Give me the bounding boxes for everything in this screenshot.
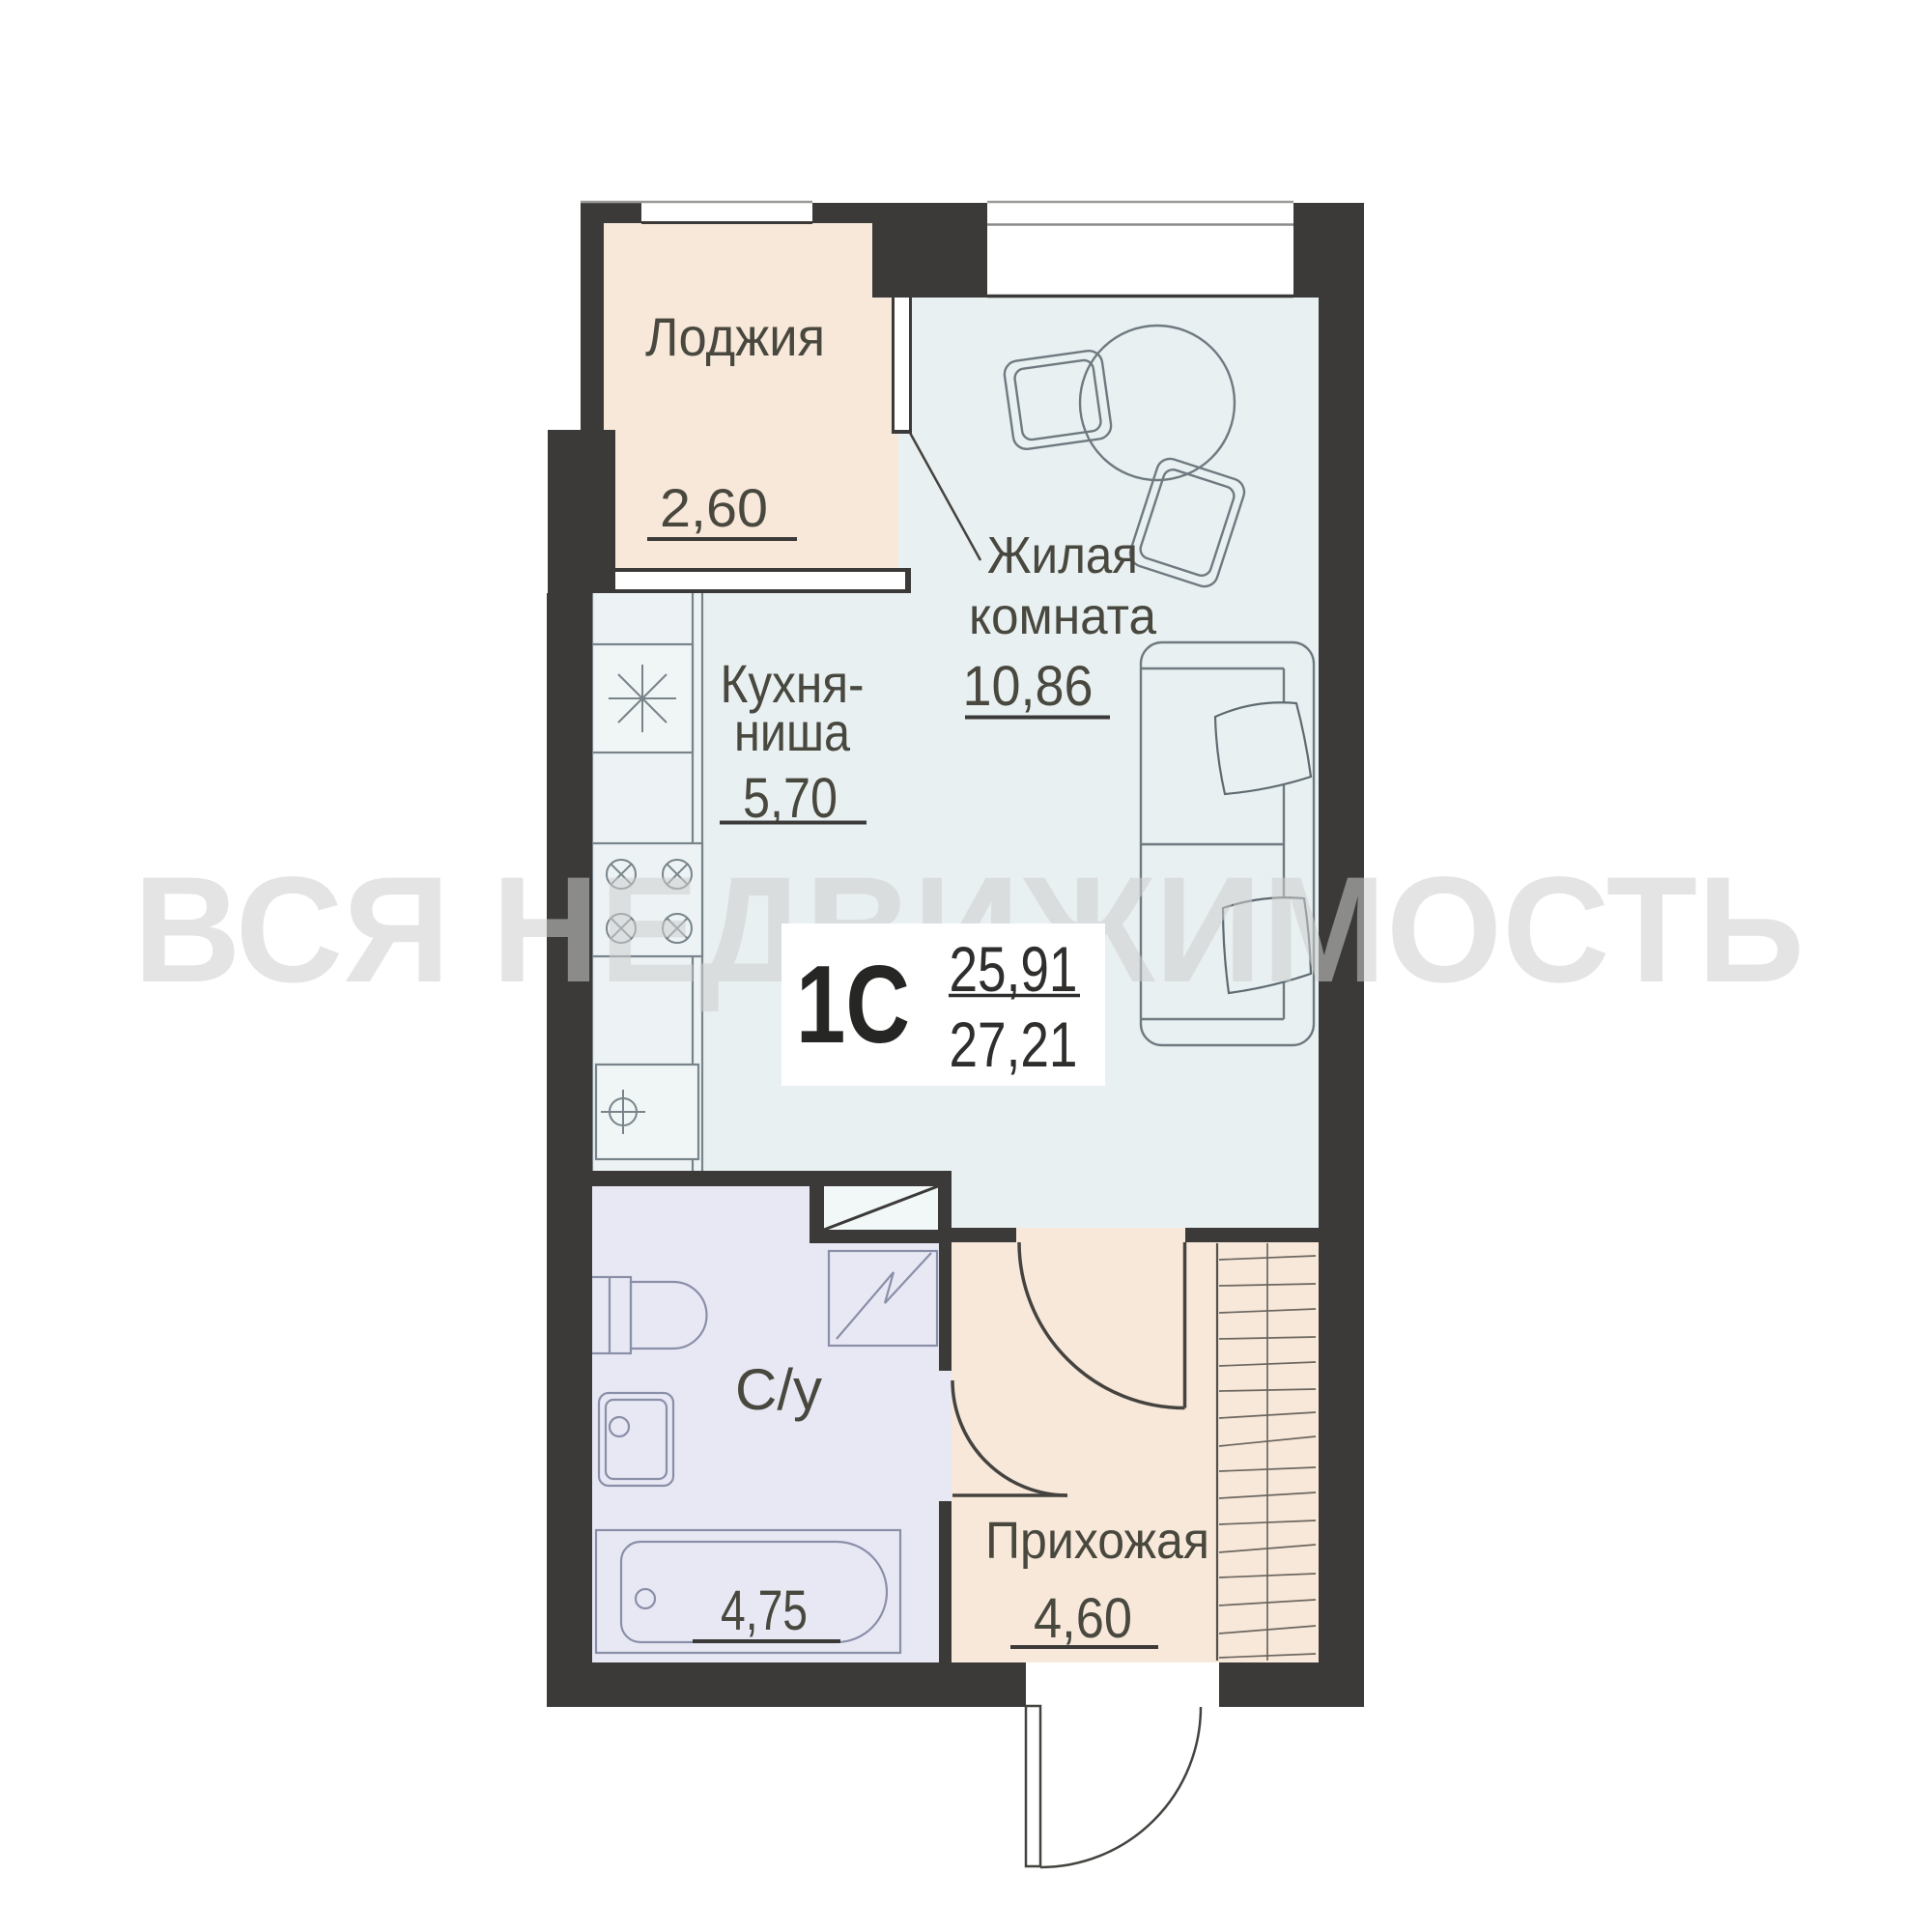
- svg-text:Жилая: Жилая: [987, 526, 1138, 584]
- svg-text:4,60: 4,60: [1034, 1587, 1132, 1650]
- svg-text:комната: комната: [969, 587, 1157, 645]
- svg-text:С/у: С/у: [735, 1357, 822, 1422]
- svg-text:1С: 1С: [796, 944, 910, 1066]
- svg-text:ниша: ниша: [734, 701, 851, 762]
- svg-text:27,21: 27,21: [950, 1009, 1078, 1080]
- svg-text:10,86: 10,86: [963, 655, 1094, 718]
- svg-text:Лоджия: Лоджия: [645, 306, 825, 367]
- svg-text:Прихожая: Прихожая: [985, 1512, 1209, 1570]
- svg-text:5,70: 5,70: [743, 767, 838, 830]
- svg-text:2,60: 2,60: [660, 477, 768, 538]
- svg-text:4,75: 4,75: [721, 1579, 808, 1642]
